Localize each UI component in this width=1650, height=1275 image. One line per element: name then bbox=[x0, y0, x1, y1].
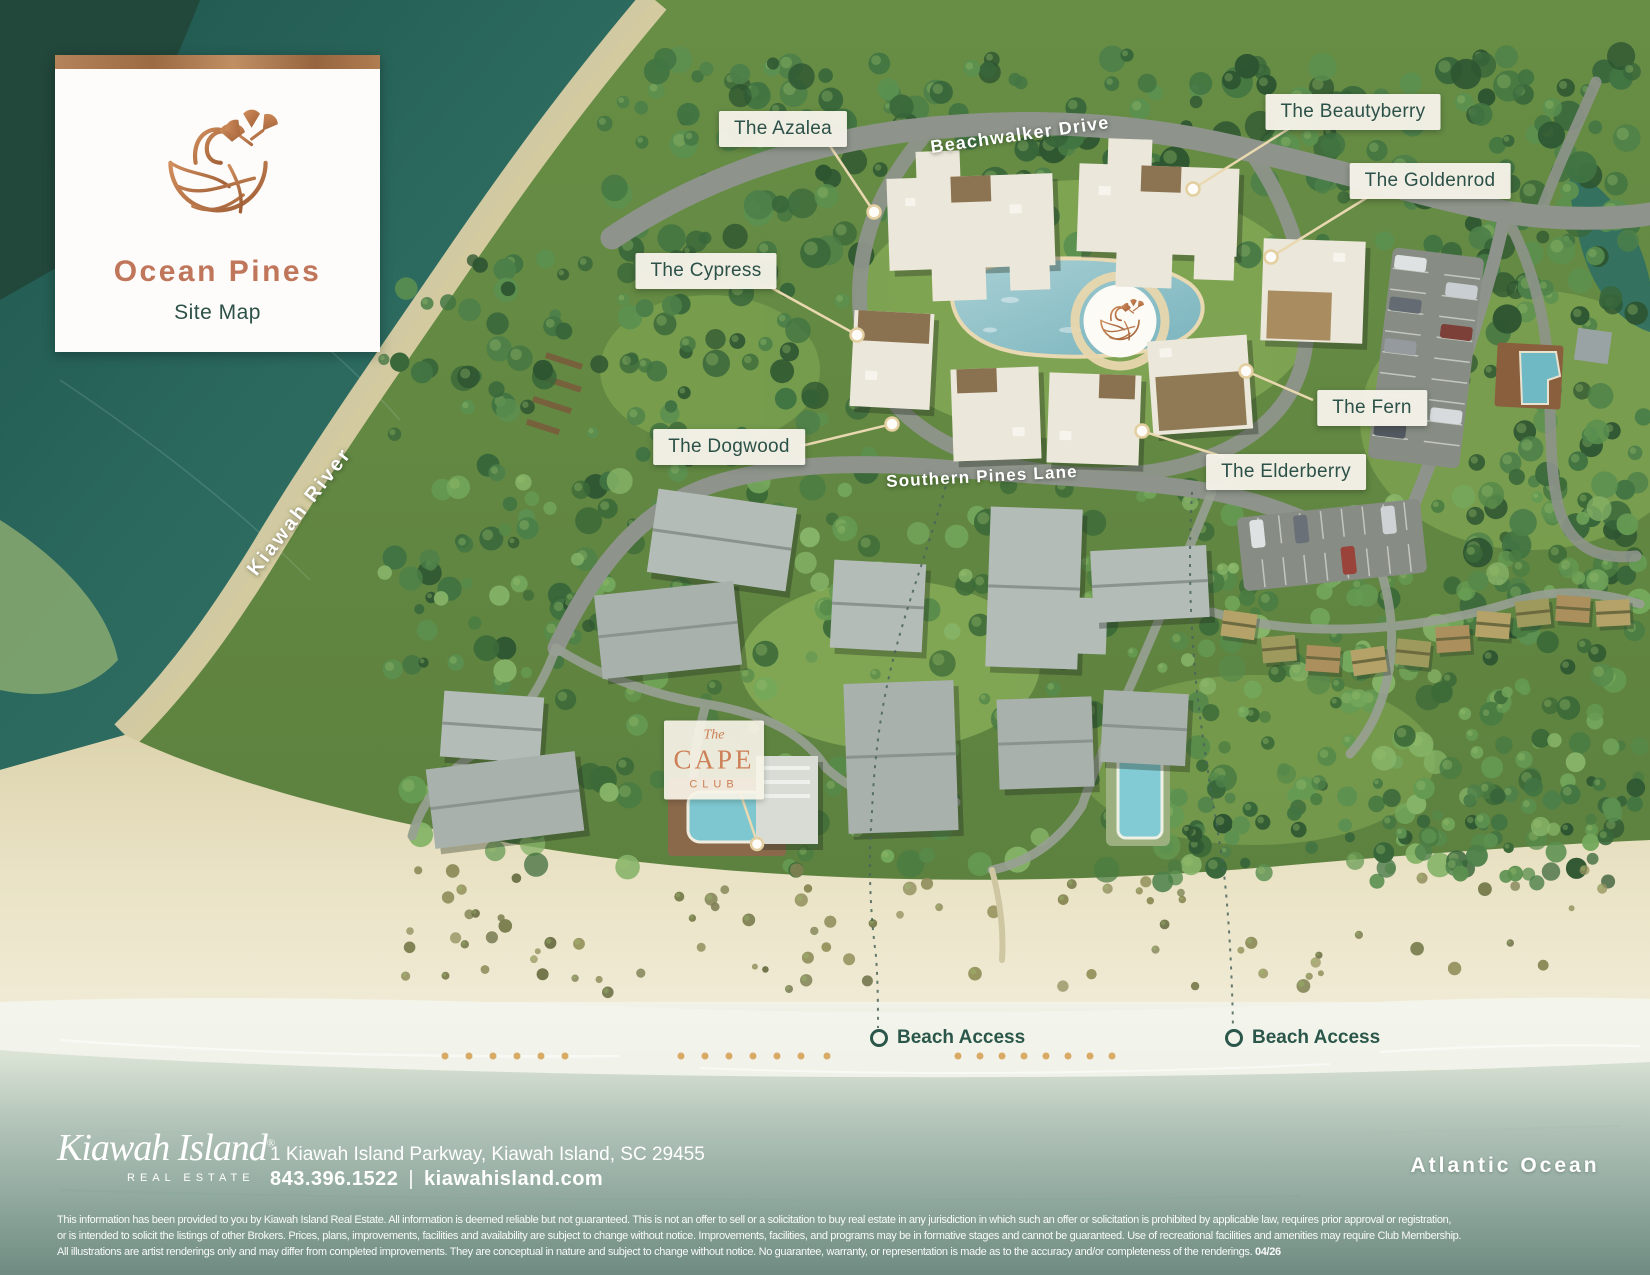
beach-access-label: Beach Access bbox=[1252, 1027, 1380, 1049]
disclaimer-date: 04/26 bbox=[1255, 1246, 1281, 1258]
map-label-the-dogwood: The Dogwood bbox=[653, 429, 805, 465]
footer-address: 1 Kiawah Island Parkway, Kiawah Island, … bbox=[270, 1144, 705, 1166]
disclaimer-line-1: This information has been provided to yo… bbox=[57, 1212, 1461, 1228]
ocean-pines-logo-icon bbox=[148, 97, 288, 237]
map-label-the-elderberry: The Elderberry bbox=[1206, 454, 1366, 490]
footer-website: kiawahisland.com bbox=[424, 1168, 603, 1190]
brand-card-copper-bar bbox=[55, 55, 380, 69]
beach-access-east: Beach Access bbox=[1225, 1027, 1380, 1049]
beach-access-marker-icon bbox=[870, 1029, 888, 1047]
brand-subtitle: Site Map bbox=[55, 301, 380, 325]
footer-contact: 843.396.1522|kiawahisland.com bbox=[270, 1168, 603, 1191]
footer-separator: | bbox=[408, 1168, 414, 1190]
cape-club-name: CAPE bbox=[664, 745, 764, 776]
cape-club-badge: The CAPE CLUB bbox=[664, 721, 764, 800]
map-label-the-goldenrod: The Goldenrod bbox=[1350, 163, 1511, 199]
map-label-the-cypress: The Cypress bbox=[635, 253, 776, 289]
disclaimer-line-3: All illustrations are artist renderings … bbox=[57, 1244, 1461, 1260]
disclaimer: This information has been provided to yo… bbox=[57, 1212, 1461, 1260]
disclaimer-line-2: or is intended to solicit the listings o… bbox=[57, 1228, 1461, 1244]
brand-card: Ocean Pines Site Map bbox=[55, 55, 380, 352]
beach-access-marker-icon bbox=[1225, 1029, 1243, 1047]
cape-club-sub: CLUB bbox=[664, 779, 764, 791]
map-label-the-beautyberry: The Beautyberry bbox=[1266, 94, 1441, 130]
kiawah-island-logo: Kiawah Island® bbox=[57, 1126, 274, 1170]
kiawah-island-wordmark: Kiawah Island bbox=[57, 1127, 267, 1169]
ocean-pines-map-emblem bbox=[1084, 285, 1157, 358]
beach-access-west: Beach Access bbox=[870, 1027, 1025, 1049]
atlantic-ocean-label: Atlantic Ocean bbox=[1410, 1154, 1599, 1178]
footer-phone: 843.396.1522 bbox=[270, 1168, 398, 1190]
cape-club-the: The bbox=[664, 728, 764, 744]
beach-access-label: Beach Access bbox=[897, 1027, 1025, 1049]
map-label-the-azalea: The Azalea bbox=[719, 111, 847, 147]
site-map-poster: The Azalea The Beautyberry The Goldenrod… bbox=[0, 0, 1650, 1275]
kiawah-real-estate-label: REAL ESTATE bbox=[127, 1172, 255, 1184]
map-label-the-fern: The Fern bbox=[1317, 390, 1427, 426]
brand-title: Ocean Pines bbox=[55, 255, 380, 289]
